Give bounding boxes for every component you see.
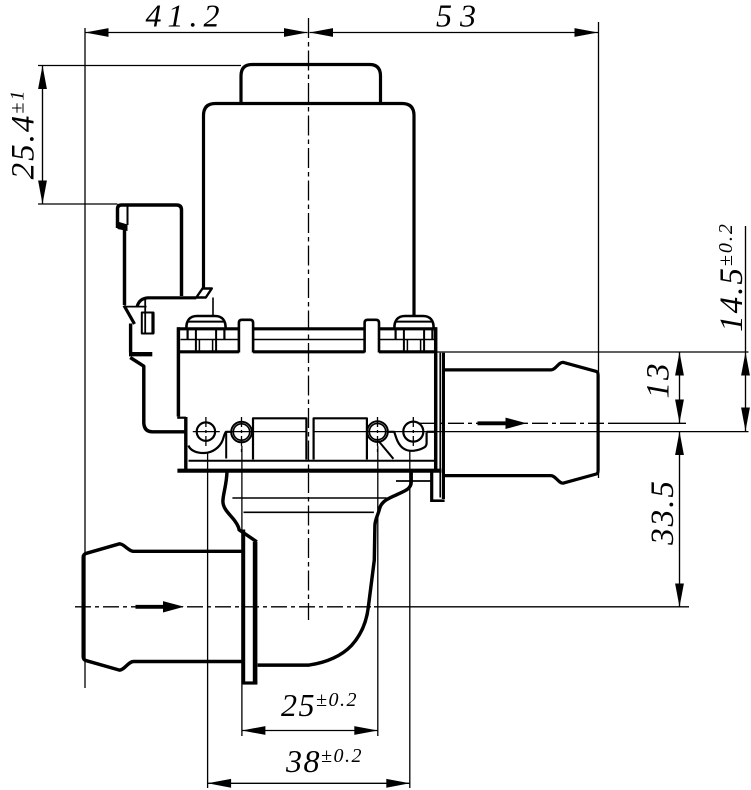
svg-text:25±0.2: 25±0.2	[281, 687, 358, 723]
svg-text:25.4±1: 25.4±1	[6, 89, 42, 180]
svg-text:41.2: 41.2	[146, 0, 226, 34]
svg-text:38±0.2: 38±0.2	[285, 743, 363, 779]
svg-text:14.5±0.2: 14.5±0.2	[714, 222, 750, 332]
svg-text:33.5: 33.5	[645, 479, 681, 546]
svg-text:53: 53	[436, 0, 484, 34]
svg-text:13: 13	[641, 362, 677, 399]
